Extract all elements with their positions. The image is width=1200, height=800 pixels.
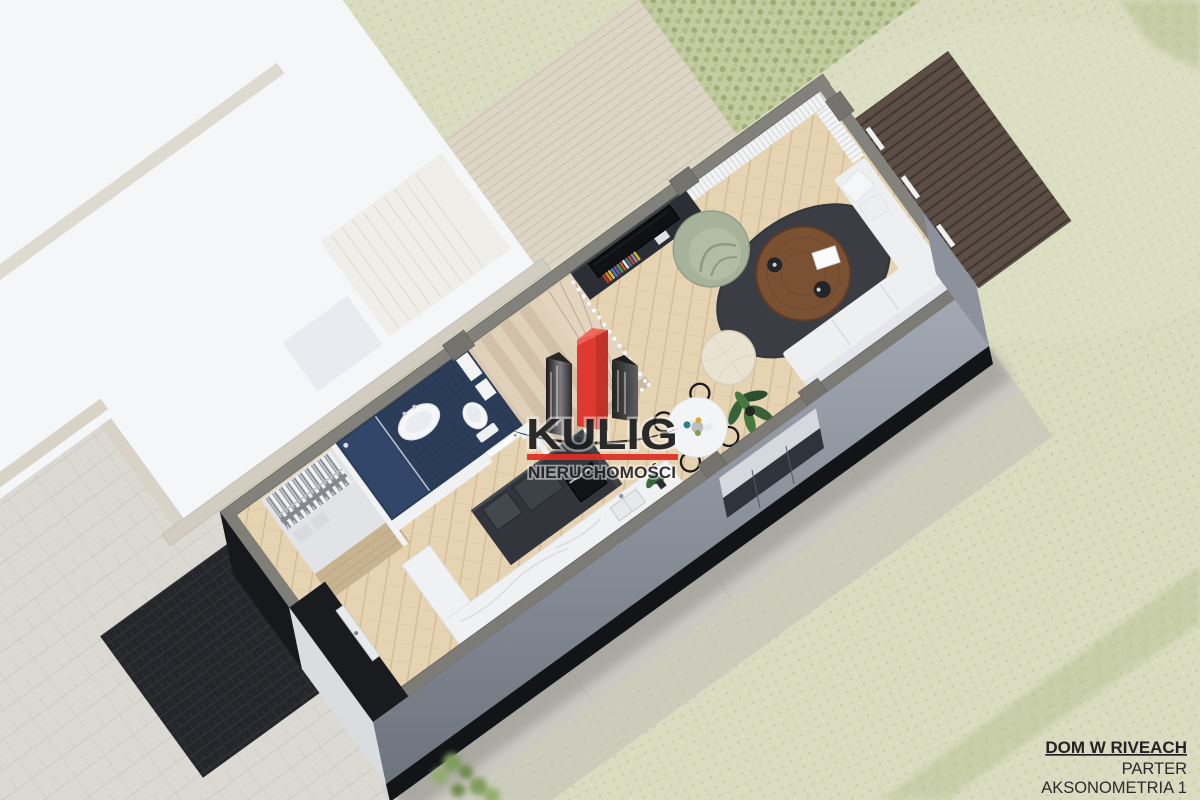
- logo-red-line: [527, 454, 678, 460]
- logo-subtitle-text: NIERUCHOMOŚCI: [528, 463, 676, 482]
- floor-plan-render: KULIG KULIG NIERUCHOMOŚCI NIERUCHOMOŚCI …: [0, 0, 1200, 800]
- floor-plan-render-page: KULIG KULIG NIERUCHOMOŚCI NIERUCHOMOŚCI …: [0, 0, 1200, 800]
- logo-brand-text: KULIG: [526, 410, 678, 459]
- view-label: AKSONOMETRIA 1: [1041, 779, 1187, 797]
- floor-label: PARTER: [1122, 760, 1187, 778]
- project-title: DOM W RIVEACH: [1045, 738, 1187, 757]
